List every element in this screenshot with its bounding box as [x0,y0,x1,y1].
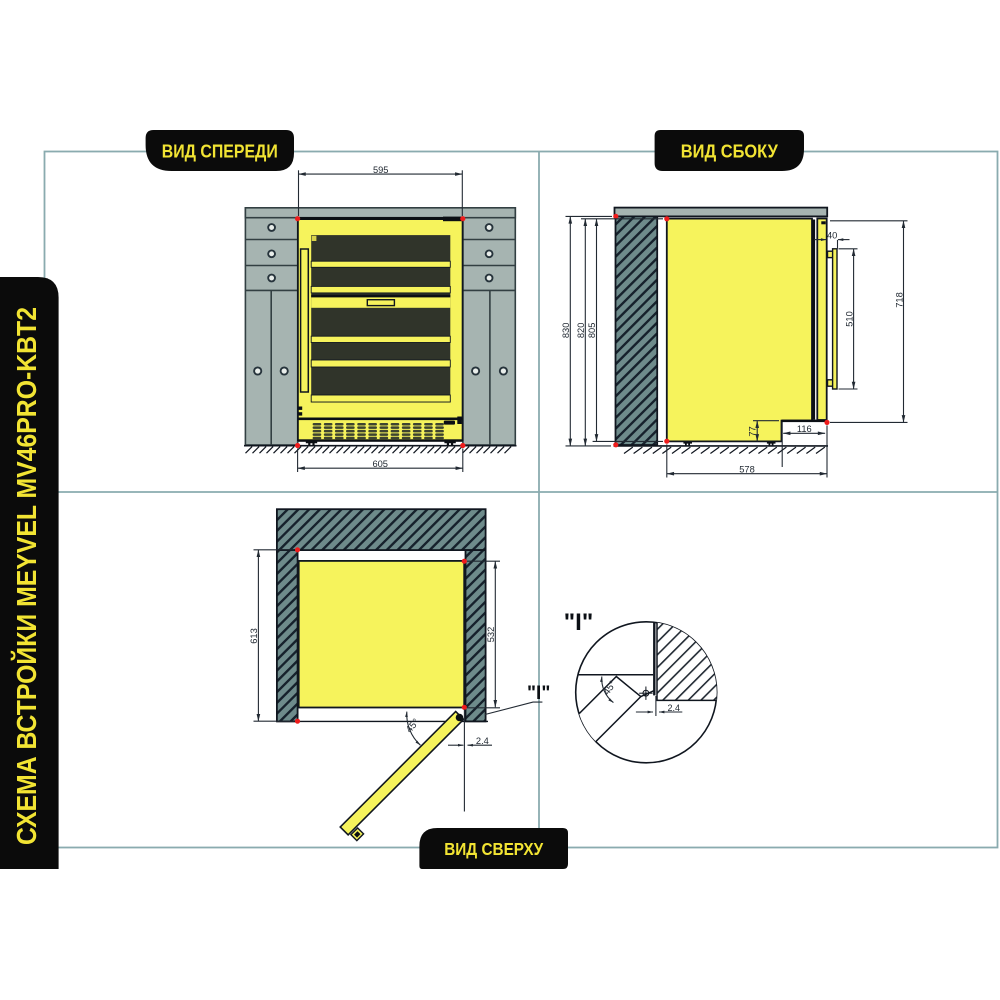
svg-text:532: 532 [486,627,496,643]
svg-text:605: 605 [372,459,388,469]
svg-text:77: 77 [747,426,757,436]
svg-text:СХЕМА ВСТРОЙКИ MEYVEL MV46PRO-: СХЕМА ВСТРОЙКИ MEYVEL MV46PRO-KBT2 [11,307,42,845]
svg-text:ВИД СПЕРЕДИ: ВИД СПЕРЕДИ [162,141,278,161]
svg-text:2.4: 2.4 [476,736,489,746]
svg-text:ВИД СВЕРХУ: ВИД СВЕРХУ [444,839,544,859]
svg-text:578: 578 [739,465,755,475]
svg-text:805: 805 [587,323,597,339]
svg-text:830: 830 [561,323,571,339]
svg-text:ВИД СБОКУ: ВИД СБОКУ [681,141,779,161]
svg-text:40: 40 [827,231,837,241]
svg-text:2.4: 2.4 [667,703,680,713]
svg-text:510: 510 [845,311,855,327]
svg-text:718: 718 [894,292,904,308]
svg-text:116: 116 [797,424,812,434]
svg-text:595: 595 [373,165,389,175]
svg-text:613: 613 [249,628,259,644]
svg-text:"I": "I" [564,609,593,636]
svg-text:"I": "I" [527,683,550,704]
svg-text:820: 820 [576,323,586,339]
